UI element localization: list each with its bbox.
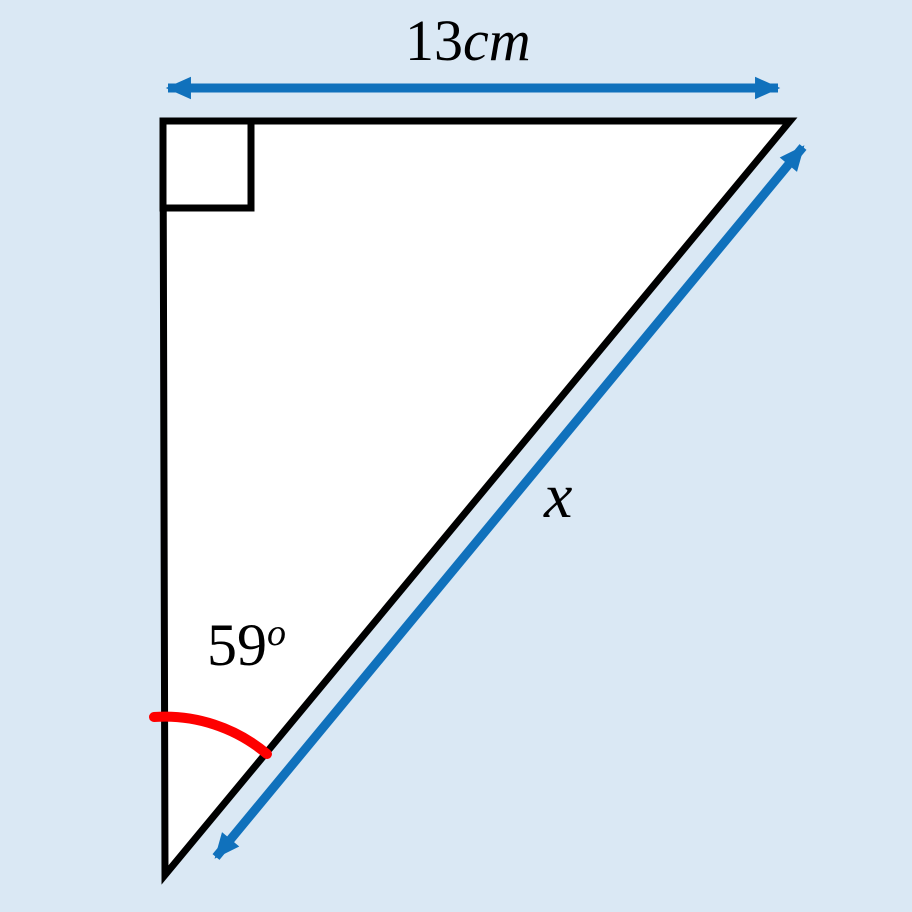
angle-value: 59 <box>207 612 267 678</box>
right-angle-marker <box>163 121 251 208</box>
degree-symbol: o <box>267 612 286 654</box>
top-side-length-label: 13cm <box>405 8 531 73</box>
diagram-canvas: 13cm x 59o <box>0 0 912 912</box>
hypotenuse-label: x <box>543 460 572 531</box>
top-side-value: 13 <box>405 8 463 73</box>
geometry-diagram: 13cm x 59o <box>0 0 912 912</box>
top-side-unit: cm <box>463 8 531 73</box>
